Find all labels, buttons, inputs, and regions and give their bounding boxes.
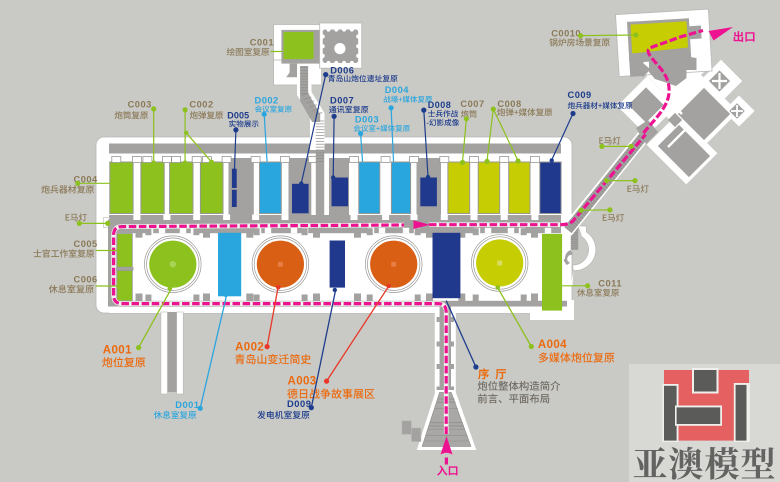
svg-text:C008: C008 — [497, 99, 521, 109]
svg-text:A004: A004 — [538, 339, 567, 351]
svg-text:D009: D009 — [287, 398, 311, 409]
svg-text:D005: D005 — [227, 110, 249, 120]
svg-text:C003: C003 — [128, 99, 152, 109]
svg-text:C011: C011 — [598, 279, 622, 289]
svg-text:C006: C006 — [74, 275, 98, 285]
svg-text:D003: D003 — [355, 114, 379, 124]
svg-text:A001: A001 — [103, 345, 132, 357]
svg-text:C009: C009 — [568, 90, 592, 100]
svg-text:D007: D007 — [330, 96, 354, 106]
svg-text:A003: A003 — [288, 376, 317, 388]
svg-text:D004: D004 — [385, 85, 410, 95]
svg-text:D008: D008 — [428, 100, 452, 110]
svg-text:D006: D006 — [330, 66, 354, 76]
svg-text:C005: C005 — [74, 239, 98, 249]
svg-text:C007: C007 — [460, 99, 484, 109]
svg-text:C0010: C0010 — [551, 28, 581, 38]
svg-text:D001: D001 — [175, 400, 199, 410]
svg-text:D002: D002 — [255, 96, 279, 106]
svg-text:C001: C001 — [250, 37, 274, 47]
svg-text:A002: A002 — [235, 342, 264, 354]
svg-text:C002: C002 — [189, 99, 213, 109]
